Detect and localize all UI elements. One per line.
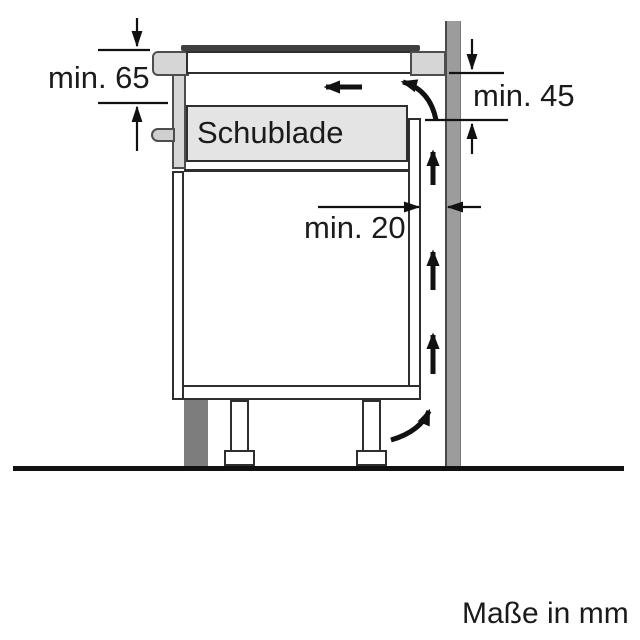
dim45-label: min. 45 [473,80,575,111]
airflow-curve-over-back-panel [403,82,436,120]
units-note: Maße in mm [462,599,629,629]
airflow-curve-into-gap-bottom [391,411,429,440]
dim65-label: min. 65 [48,62,150,93]
installation-diagram: Schublade [0,0,640,640]
dim20-label: min. 20 [304,212,406,243]
